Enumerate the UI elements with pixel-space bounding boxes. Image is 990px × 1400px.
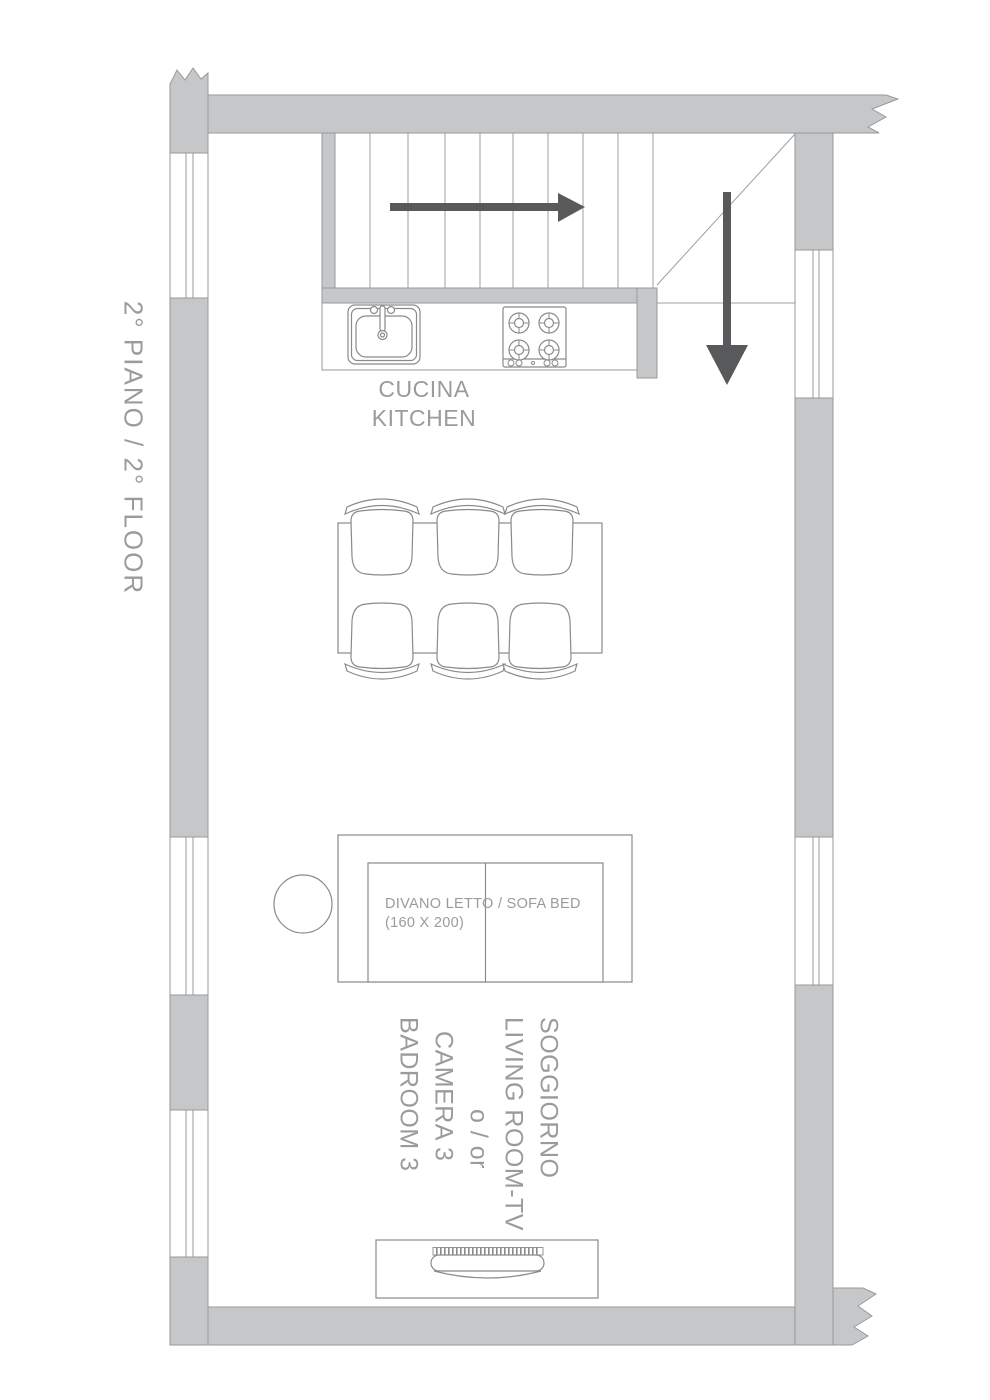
stove-icon (503, 307, 566, 367)
chair (503, 603, 577, 679)
room-label-italian: SOGGIORNO (531, 1017, 566, 1231)
staircase (370, 133, 795, 303)
room-label-bedroom: BADROOM 3 (391, 1017, 426, 1231)
right-arrow-icon (390, 193, 585, 222)
wall-right-bottom (795, 985, 833, 1345)
window-right-1 (795, 250, 833, 398)
chair (345, 499, 419, 575)
room-label-or: o / or (461, 1017, 496, 1231)
wall-left-top (170, 68, 208, 153)
living-room-label: SOGGIORNO LIVING ROOM-TV o / or CAMERA 3… (391, 1017, 566, 1231)
sink-icon (348, 305, 420, 364)
side-table (274, 875, 332, 933)
sofa-label-size: (160 X 200) (385, 914, 581, 933)
wall-top (208, 95, 898, 133)
window-left-1 (170, 153, 208, 298)
kitchen-label-english: KITCHEN (372, 404, 476, 433)
wall-bottom-break (833, 1288, 876, 1345)
wall-left-middle (170, 298, 208, 837)
floor-plan: 2° PIANO / 2° FLOOR CUCINA KITCHEN DIVAN… (0, 0, 990, 1400)
wall-left-pier (170, 995, 208, 1110)
window-right-2 (795, 837, 833, 985)
wall-right-middle (795, 398, 833, 837)
wall-stair-left (322, 133, 335, 293)
window-left-2 (170, 837, 208, 995)
room-label-camera: CAMERA 3 (426, 1017, 461, 1231)
down-arrow-icon (706, 192, 748, 385)
dining-set (338, 499, 602, 679)
wall-bottom (208, 1307, 833, 1345)
room-label-english: LIVING ROOM-TV (496, 1017, 531, 1231)
wall-kitchen-right (637, 288, 657, 378)
sofa-bed-label: DIVANO LETTO / SOFA BED (160 X 200) (385, 895, 581, 933)
wall-left-corner (170, 1257, 208, 1345)
sofa-label-name: DIVANO LETTO / SOFA BED (385, 895, 581, 914)
kitchen-area (322, 303, 637, 370)
chair (345, 603, 419, 679)
chair (505, 499, 579, 575)
wall-under-stair (322, 288, 657, 303)
floor-title: 2° PIANO / 2° FLOOR (118, 301, 149, 595)
tv-cabinet (376, 1240, 598, 1298)
chair (431, 603, 505, 679)
kitchen-room-label: CUCINA KITCHEN (372, 375, 476, 433)
chair (431, 499, 505, 575)
window-left-3 (170, 1110, 208, 1257)
kitchen-label-italian: CUCINA (372, 375, 476, 404)
wall-right-top (795, 133, 833, 250)
